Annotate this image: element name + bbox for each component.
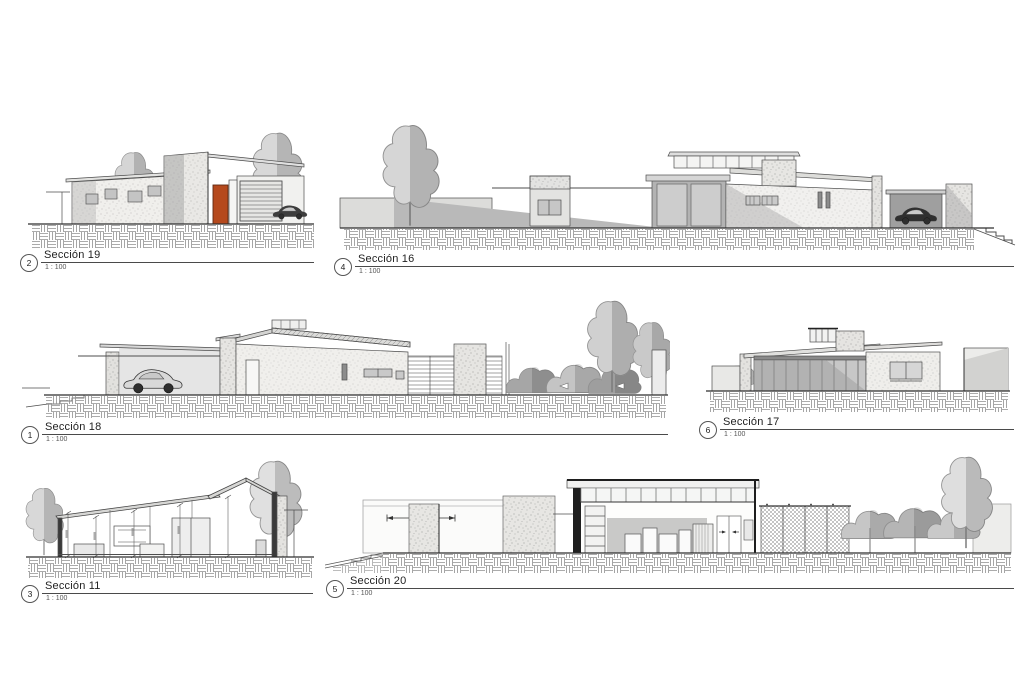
viewport-title-text: Sección 16 [355,253,1014,265]
viewport-scale: 1 : 100 [42,436,668,443]
viewport-seccion-20[interactable] [325,446,1015,574]
viewport-title-text: Sección 18 [42,421,668,433]
clerestory-cupola [808,329,864,352]
viewport-scale: 1 : 100 [720,431,1014,438]
section-seccion-11 [26,461,314,578]
tall-volume [164,152,208,224]
elevation-seccion-16 [340,125,1015,250]
side-wall [712,366,740,391]
viewport-title-seccion-17: 6 Sección 17 1 : 100 [699,416,1014,439]
viewport-title-text: Sección 19 [41,249,314,261]
viewport-title-text: Sección 20 [347,575,1014,587]
viewport-title-seccion-18: 1 Sección 18 1 : 100 [21,421,668,444]
title-underline [347,588,1014,589]
stucco-pillar [946,184,972,228]
trees-shrubs [506,301,670,393]
viewport-title-text: Sección 17 [720,416,1014,428]
viewport-number-bubble: 2 [20,254,38,272]
ground-hatch [340,228,994,250]
viewport-seccion-17[interactable] [698,312,1016,416]
viewport-number-bubble: 1 [21,426,39,444]
viewport-seccion-19[interactable] [16,128,318,252]
title-underline [42,434,668,435]
louver-fence [408,342,509,395]
viewport-scale: 1 : 100 [42,595,313,602]
title-underline [42,593,313,594]
title-underline [720,429,1014,430]
viewport-number-bubble: 4 [334,258,352,276]
viewport-seccion-11[interactable] [22,452,318,579]
boundary-wall [964,348,1008,391]
elevation-seccion-17 [706,329,1010,413]
ground-hatch [325,553,1011,573]
metal-roof [236,320,410,347]
glazed-facade [754,356,866,391]
trees [841,457,992,553]
viewport-scale: 1 : 100 [41,264,314,271]
drawing-sheet: 2 Sección 19 1 : 100 4 Sección 16 1 : 10… [0,0,1024,691]
elevation-seccion-18 [22,301,670,418]
fence [46,192,70,224]
viewport-title-text: Sección 11 [42,580,313,592]
viewport-seccion-16[interactable] [334,118,1016,256]
viewport-seccion-18[interactable] [20,292,670,423]
title-underline [355,266,1014,267]
exterior-steps [974,228,1015,245]
main-wall [726,176,882,228]
stucco-pillar [409,504,439,553]
small-cube [530,176,570,226]
viewport-title-seccion-20: 5 Sección 20 1 : 100 [326,575,1014,598]
viewport-title-seccion-16: 4 Sección 16 1 : 100 [334,253,1014,276]
glass-volume [646,175,730,228]
ground-hatch [28,224,314,248]
right-mass [866,352,940,391]
viewport-number-bubble: 3 [21,585,39,603]
boundary-wall [340,198,664,228]
viewport-title-seccion-19: 2 Sección 19 1 : 100 [20,249,314,272]
elevation-seccion-19 [28,133,314,248]
house-wall [236,344,408,395]
title-underline [41,262,314,263]
ground-hatch [26,557,314,578]
interior [58,500,272,557]
viewport-number-bubble: 6 [699,421,717,439]
mesh-fence [759,504,851,553]
section-seccion-20 [325,457,1011,573]
ground-hatch [44,395,668,418]
entry-door [213,180,237,224]
stucco-mass [503,496,573,553]
roof-section [56,478,280,519]
viewport-title-seccion-11: 3 Sección 11 1 : 100 [21,580,313,603]
viewport-scale: 1 : 100 [347,590,1014,597]
viewport-scale: 1 : 100 [355,268,1014,275]
viewport-number-bubble: 5 [326,580,344,598]
stucco-strip [740,354,751,391]
rear-wall [652,350,666,395]
ground-hatch [706,391,1010,412]
